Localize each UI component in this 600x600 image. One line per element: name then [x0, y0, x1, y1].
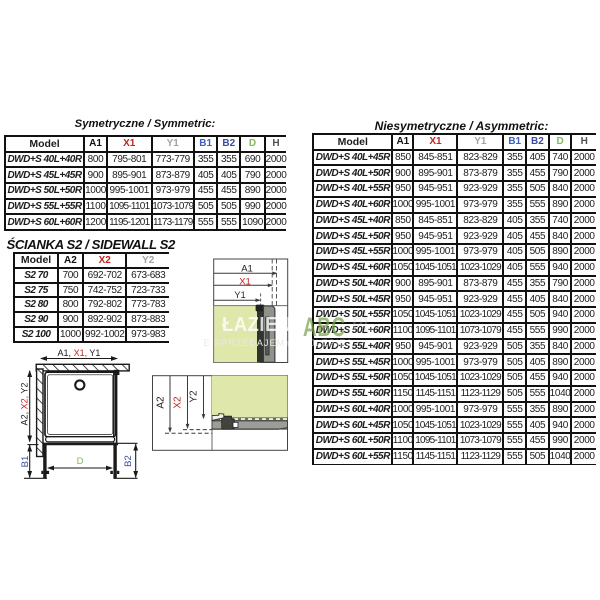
svg-text:A2: A2: [156, 396, 167, 409]
svg-text:B2: B2: [123, 455, 134, 467]
svg-text:X2: X2: [173, 396, 184, 409]
svg-text:D: D: [77, 456, 84, 467]
svg-text:Y2: Y2: [189, 390, 200, 403]
svg-text:Y1: Y1: [234, 290, 246, 301]
svg-text:X1: X1: [239, 277, 251, 288]
svg-text:A1, X1, Y1: A1, X1, Y1: [58, 348, 101, 358]
svg-text:A2, X2, Y2: A2, X2, Y2: [20, 383, 30, 426]
svg-text:B1: B1: [20, 456, 31, 468]
